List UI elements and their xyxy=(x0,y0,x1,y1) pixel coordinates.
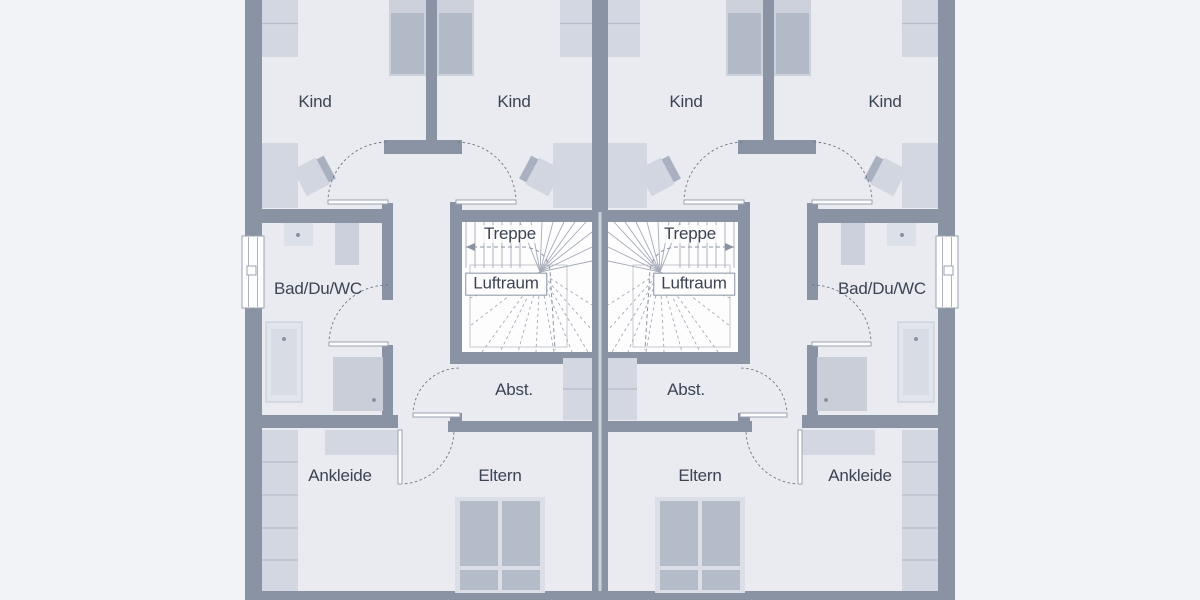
wardrobe xyxy=(325,430,398,455)
stairwell-floor xyxy=(608,222,738,352)
bathtub-dot xyxy=(914,337,918,341)
wardrobe xyxy=(262,143,298,208)
door-kind-right-leaf xyxy=(456,200,516,204)
kind-divider-wall xyxy=(763,0,774,140)
bath-right-wall-lower xyxy=(382,345,393,416)
wc xyxy=(335,223,359,265)
door-eltern-leaf xyxy=(798,430,802,484)
wardrobe xyxy=(262,430,298,591)
bed-inner xyxy=(391,13,424,74)
kind-divider-wall xyxy=(426,0,437,140)
wc xyxy=(841,223,865,265)
shower xyxy=(333,357,383,411)
bath-right-wall-lower xyxy=(807,345,818,416)
wardrobe xyxy=(902,0,938,57)
hall-stub-wall xyxy=(382,203,393,224)
outer-wall-bottom xyxy=(245,591,955,600)
nightstand xyxy=(608,0,640,57)
door-bath-leaf xyxy=(812,342,871,346)
door-abst-leaf xyxy=(413,413,460,417)
wardrobe xyxy=(902,143,938,208)
abst-bottom-wall xyxy=(448,421,592,432)
window-handle xyxy=(944,266,953,275)
abst-bottom-wall xyxy=(608,421,752,432)
plan-geometry xyxy=(0,0,1200,600)
stair-top-wall xyxy=(450,210,592,222)
hall-wing-wall xyxy=(738,140,816,154)
door-kind-left-leaf xyxy=(328,200,388,204)
shower xyxy=(817,357,867,411)
bath-right-wall-upper xyxy=(382,223,393,300)
stair-left-wall xyxy=(738,222,750,352)
bed-inner xyxy=(439,13,472,74)
double-bed-inner xyxy=(502,570,540,590)
door-bath-leaf xyxy=(329,342,388,346)
bath-top-wall xyxy=(818,209,938,223)
double-bed-inner xyxy=(460,570,498,590)
stairwell-floor xyxy=(462,222,592,352)
shower-dot xyxy=(824,398,828,402)
washbasin-dot xyxy=(296,233,300,237)
window-handle xyxy=(247,266,256,275)
bathtub-dot xyxy=(282,337,286,341)
double-bed-inner xyxy=(660,501,698,566)
bath-right-wall-upper xyxy=(807,223,818,300)
stair-left-wall xyxy=(450,222,462,352)
door-kind-right-leaf xyxy=(684,200,744,204)
wardrobe xyxy=(802,430,875,455)
wardrobe xyxy=(262,0,298,57)
bed-inner xyxy=(728,13,761,74)
hall-wing-wall xyxy=(384,140,462,154)
bath-top-wall xyxy=(262,209,382,223)
stair-top-wall xyxy=(608,210,750,222)
party-wall-seam xyxy=(599,212,602,591)
door-kind-left-leaf xyxy=(812,200,872,204)
bath-bottom-wall xyxy=(802,415,938,428)
double-bed-inner xyxy=(702,501,740,566)
hall-stub-wall xyxy=(807,203,818,224)
nightstand xyxy=(560,0,592,57)
floor-plan-canvas: KindKindKindKindTreppeTreppeLuftraumLuft… xyxy=(0,0,1200,600)
double-bed-inner xyxy=(502,501,540,566)
washbasin-dot xyxy=(900,233,904,237)
door-eltern-leaf xyxy=(398,430,402,484)
door-abst-leaf xyxy=(740,413,787,417)
double-bed-inner xyxy=(702,570,740,590)
shower-dot xyxy=(372,398,376,402)
bed-inner xyxy=(776,13,809,74)
wardrobe xyxy=(902,430,938,591)
bath-bottom-wall xyxy=(262,415,398,428)
double-bed-inner xyxy=(460,501,498,566)
double-bed-inner xyxy=(660,570,698,590)
